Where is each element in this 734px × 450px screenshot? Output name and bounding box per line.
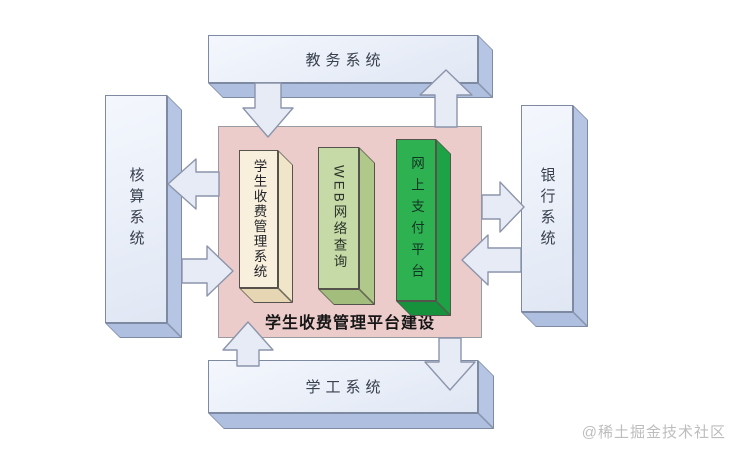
arrow-platform-to-bank-icon [482, 182, 524, 232]
diagram-canvas: 教务系统 核算系统 银行系统 学工系统 学生收费管理系统 [0, 0, 734, 450]
arrow-platform-to-student-affairs-icon [425, 338, 475, 390]
arrow-platform-to-top-icon [420, 70, 472, 127]
arrow-accounting-to-platform-icon [182, 246, 233, 296]
arrow-student-affairs-to-platform-icon [223, 322, 273, 366]
arrow-platform-to-accounting-icon [168, 159, 219, 209]
arrow-bank-to-platform-icon [462, 235, 521, 285]
arrow-top-to-platform-icon [243, 83, 293, 137]
connection-arrows [0, 0, 734, 450]
